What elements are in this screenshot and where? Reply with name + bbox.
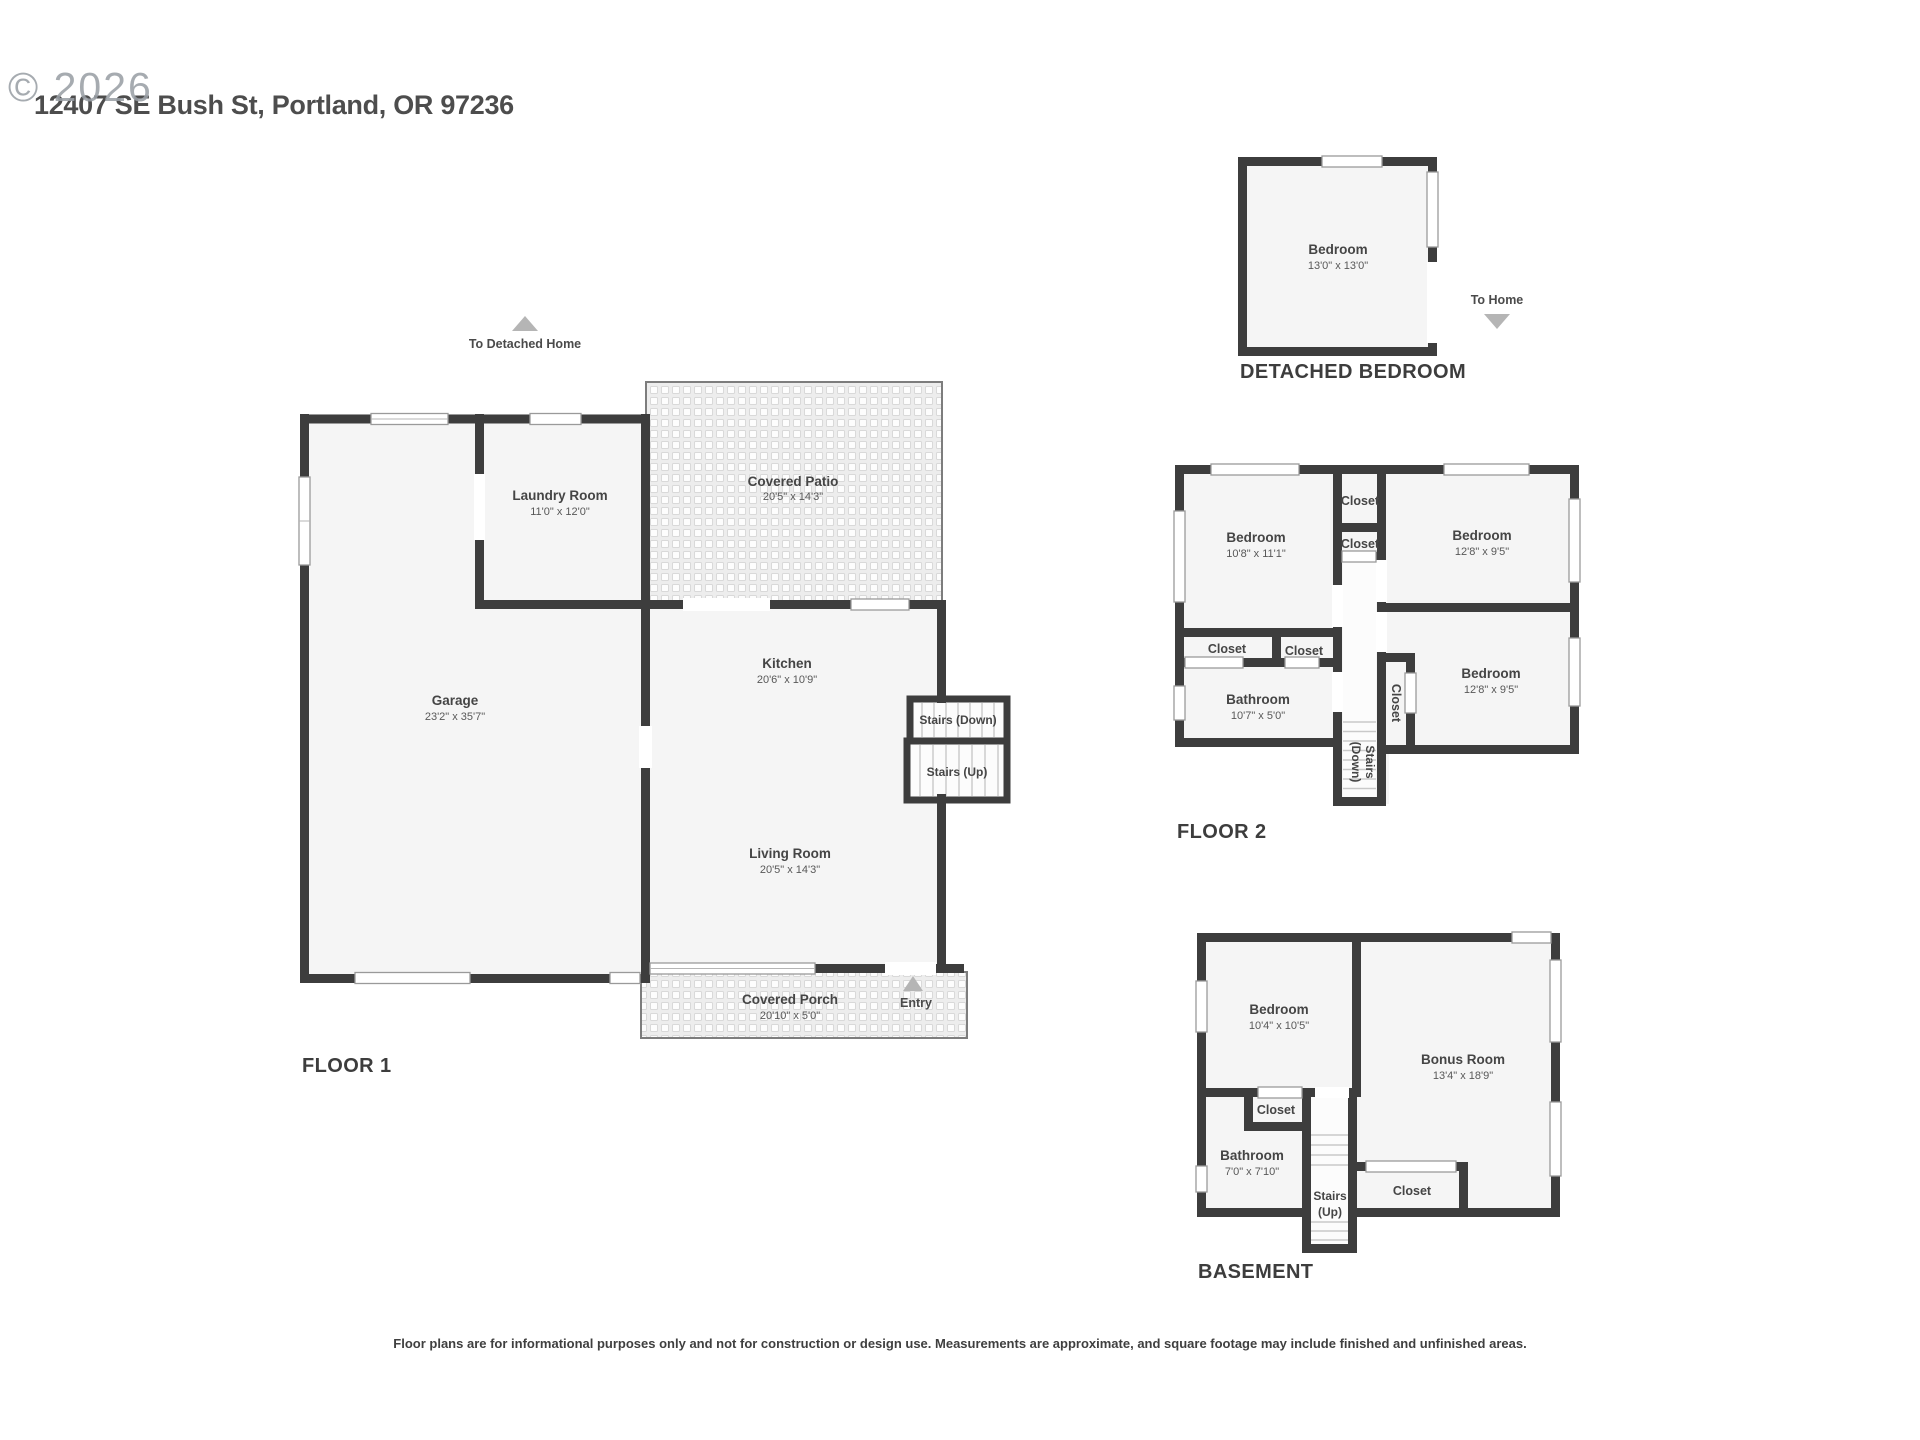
closet-label-f2-top: Closet	[1341, 494, 1380, 508]
closet-label-f2-left: Closet	[1208, 642, 1247, 656]
closet-label-bsmt-top: Closet	[1257, 1103, 1296, 1117]
detached-door-opening	[1427, 262, 1438, 343]
floor-plan-page: 12407 SE Bush St, Portland, OR 97236 © 2…	[0, 0, 1920, 1440]
floor2-stairs-line2: (Down)	[1349, 742, 1363, 783]
room-label-living: Living Room	[749, 846, 831, 861]
basement-title: BASEMENT	[1198, 1261, 1313, 1283]
floor1-plan: Garage 23'2" x 35'7" Laundry Room 11'0" …	[299, 316, 1007, 1077]
room-dims-f2-bedroom1: 10'8" x 11'1"	[1226, 548, 1286, 560]
to-home-arrow-icon	[1484, 314, 1510, 329]
room-label-patio: Covered Patio	[748, 474, 839, 489]
room-label-f2-bathroom: Bathroom	[1226, 692, 1290, 707]
detached-bedroom-title: DETACHED BEDROOM	[1240, 361, 1466, 383]
to-detached-home-arrow-icon	[512, 316, 538, 331]
basement-hall-opening	[1315, 1087, 1349, 1098]
room-dims-f2-bedroom2: 12'8" x 9'5"	[1455, 546, 1509, 558]
closet-label-f2-left2: Closet	[1285, 644, 1324, 658]
basement-plan: Bedroom 10'4" x 10'5" Bonus Room 13'4" x…	[1196, 932, 1561, 1283]
stairs-down-label: Stairs (Down)	[919, 713, 996, 727]
stairs-up-label: Stairs (Up)	[927, 765, 988, 779]
room-dims-f2-bedroom3: 12'8" x 9'5"	[1464, 684, 1518, 696]
floor2-title: FLOOR 2	[1177, 821, 1266, 843]
room-dims-patio: 20'5" x 14'3"	[763, 491, 823, 503]
detached-bedroom-plan: Bedroom 13'0" x 13'0" To Home DETACHED B…	[1238, 156, 1523, 383]
closet-label-f2-vertical: Closet	[1389, 684, 1403, 723]
floor1-title: FLOOR 1	[302, 1055, 391, 1077]
disclaimer-text: Floor plans are for informational purpos…	[0, 1336, 1920, 1351]
to-detached-home-label: To Detached Home	[469, 337, 581, 351]
floor2-plan: Bedroom 10'8" x 11'1" Bedroom 12'8" x 9'…	[1174, 464, 1580, 843]
room-label-bsmt-bedroom: Bedroom	[1249, 1002, 1308, 1017]
room-dims-living: 20'5" x 14'3"	[760, 864, 820, 876]
floor-plans-canvas: Garage 23'2" x 35'7" Laundry Room 11'0" …	[0, 0, 1920, 1440]
room-dims-kitchen: 20'6" x 10'9"	[757, 674, 817, 686]
to-home-label: To Home	[1471, 293, 1524, 307]
room-dims-bonus-room: 13'4" x 18'9"	[1433, 1070, 1493, 1082]
entry-label: Entry	[900, 996, 932, 1010]
room-label-bsmt-bathroom: Bathroom	[1220, 1148, 1284, 1163]
room-dims-garage: 23'2" x 35'7"	[425, 711, 485, 723]
room-label-garage: Garage	[432, 693, 479, 708]
room-label-bonus-room: Bonus Room	[1421, 1052, 1505, 1067]
room-label-porch: Covered Porch	[742, 992, 838, 1007]
room-dims-bsmt-bedroom: 10'4" x 10'5"	[1249, 1020, 1309, 1032]
basement-stairs-line2: (Up)	[1318, 1205, 1342, 1219]
floor2-stairs-line1: Stairs	[1363, 745, 1377, 779]
closet-label-f2-mid: Closet	[1341, 537, 1380, 551]
room-dims-f2-bathroom: 10'7" x 5'0"	[1231, 710, 1285, 722]
room-label-detached-bedroom: Bedroom	[1308, 242, 1367, 257]
room-label-f2-bedroom1: Bedroom	[1226, 530, 1285, 545]
room-dims-detached-bedroom: 13'0" x 13'0"	[1308, 260, 1368, 272]
floor2-stairs-label: Stairs(Down)	[1349, 742, 1377, 783]
room-label-f2-bedroom2: Bedroom	[1452, 528, 1511, 543]
room-dims-bsmt-bathroom: 7'0" x 7'10"	[1225, 1166, 1279, 1178]
room-dims-laundry: 11'0" x 12'0"	[530, 506, 590, 518]
room-label-f2-bedroom3: Bedroom	[1461, 666, 1520, 681]
basement-stairs-line1: Stairs	[1313, 1189, 1347, 1203]
room-label-laundry: Laundry Room	[512, 488, 607, 503]
room-label-kitchen: Kitchen	[762, 656, 812, 671]
room-dims-porch: 20'10" x 5'0"	[760, 1010, 820, 1022]
closet-label-bsmt-bottom: Closet	[1393, 1184, 1432, 1198]
